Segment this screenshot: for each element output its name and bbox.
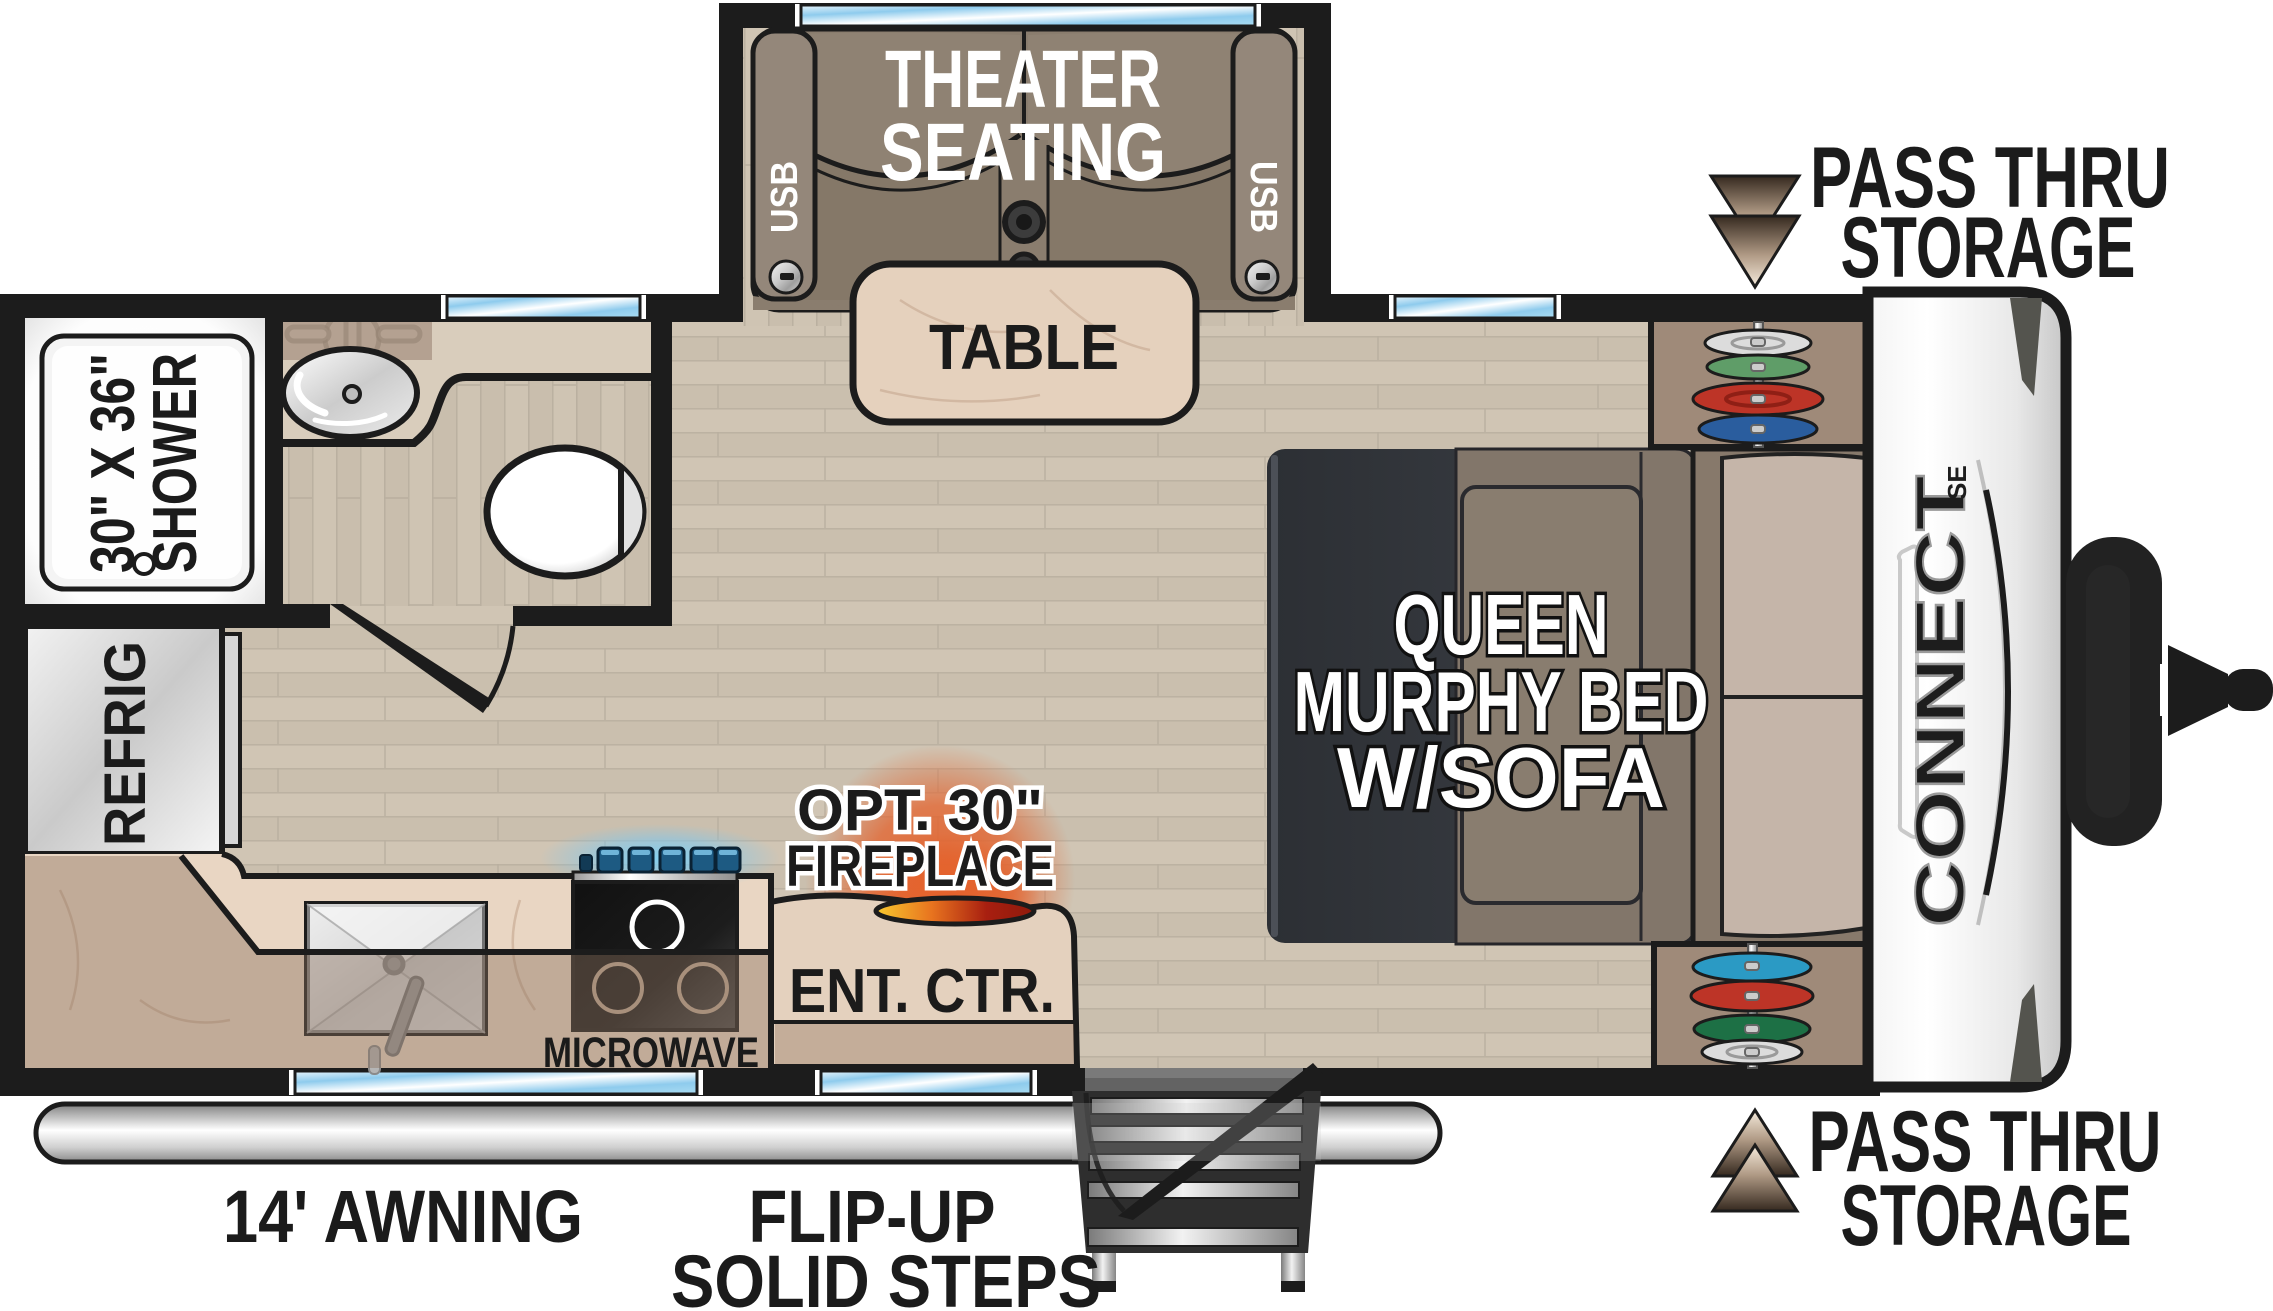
svg-text:SE: SE	[1942, 465, 1972, 500]
svg-text:W/SOFA: W/SOFA	[1337, 731, 1665, 826]
svg-text:USB: USB	[764, 161, 806, 233]
svg-text:30" X 36": 30" X 36"	[79, 353, 148, 573]
svg-text:14' AWNING: 14' AWNING	[223, 1175, 583, 1258]
svg-text:USB: USB	[1242, 161, 1284, 233]
svg-text:FIREPLACE: FIREPLACE	[786, 834, 1054, 899]
svg-text:CONNECT: CONNECT	[1901, 475, 1979, 927]
svg-text:SEATING: SEATING	[880, 107, 1166, 198]
svg-text:SOLID STEPS: SOLID STEPS	[671, 1240, 1101, 1311]
svg-text:TABLE: TABLE	[929, 311, 1119, 383]
svg-text:ENT. CTR.: ENT. CTR.	[789, 957, 1055, 1026]
svg-text:STORAGE: STORAGE	[1841, 200, 2136, 296]
svg-text:REFRIG: REFRIG	[93, 641, 158, 846]
svg-text:STORAGE: STORAGE	[1841, 1168, 2132, 1264]
svg-text:SHOWER: SHOWER	[141, 353, 210, 573]
svg-text:MICROWAVE: MICROWAVE	[543, 1029, 759, 1077]
